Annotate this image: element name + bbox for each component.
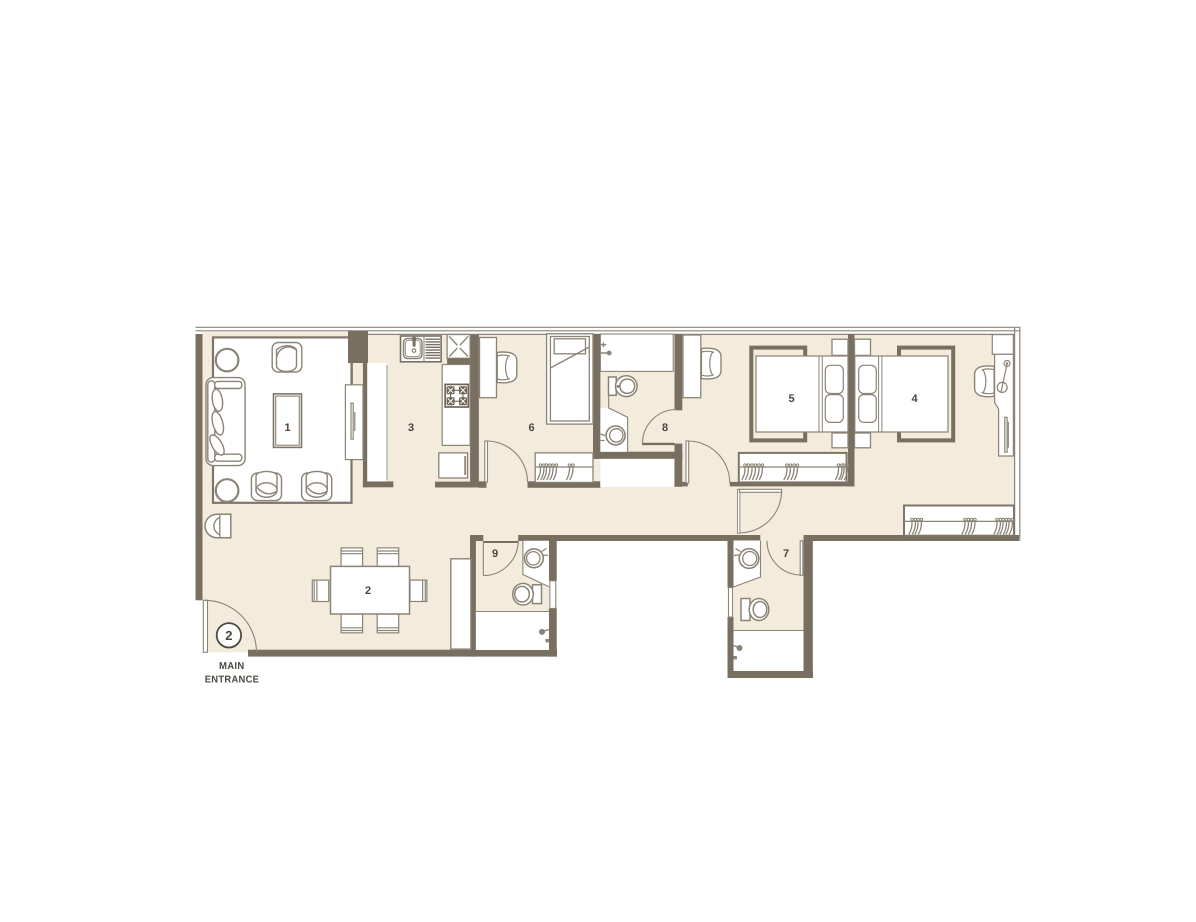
svg-text:9: 9 [492, 548, 498, 560]
svg-text:6: 6 [528, 422, 534, 434]
svg-text:5: 5 [788, 393, 794, 405]
svg-text:2: 2 [365, 585, 371, 597]
svg-text:1: 1 [284, 422, 290, 434]
svg-text:7: 7 [783, 548, 789, 560]
svg-text:2: 2 [225, 628, 232, 643]
svg-text:4: 4 [911, 393, 918, 405]
svg-text:8: 8 [662, 422, 668, 434]
svg-text:MAIN: MAIN [219, 661, 245, 672]
svg-text:ENTRANCE: ENTRANCE [205, 674, 260, 685]
svg-text:3: 3 [408, 422, 414, 434]
